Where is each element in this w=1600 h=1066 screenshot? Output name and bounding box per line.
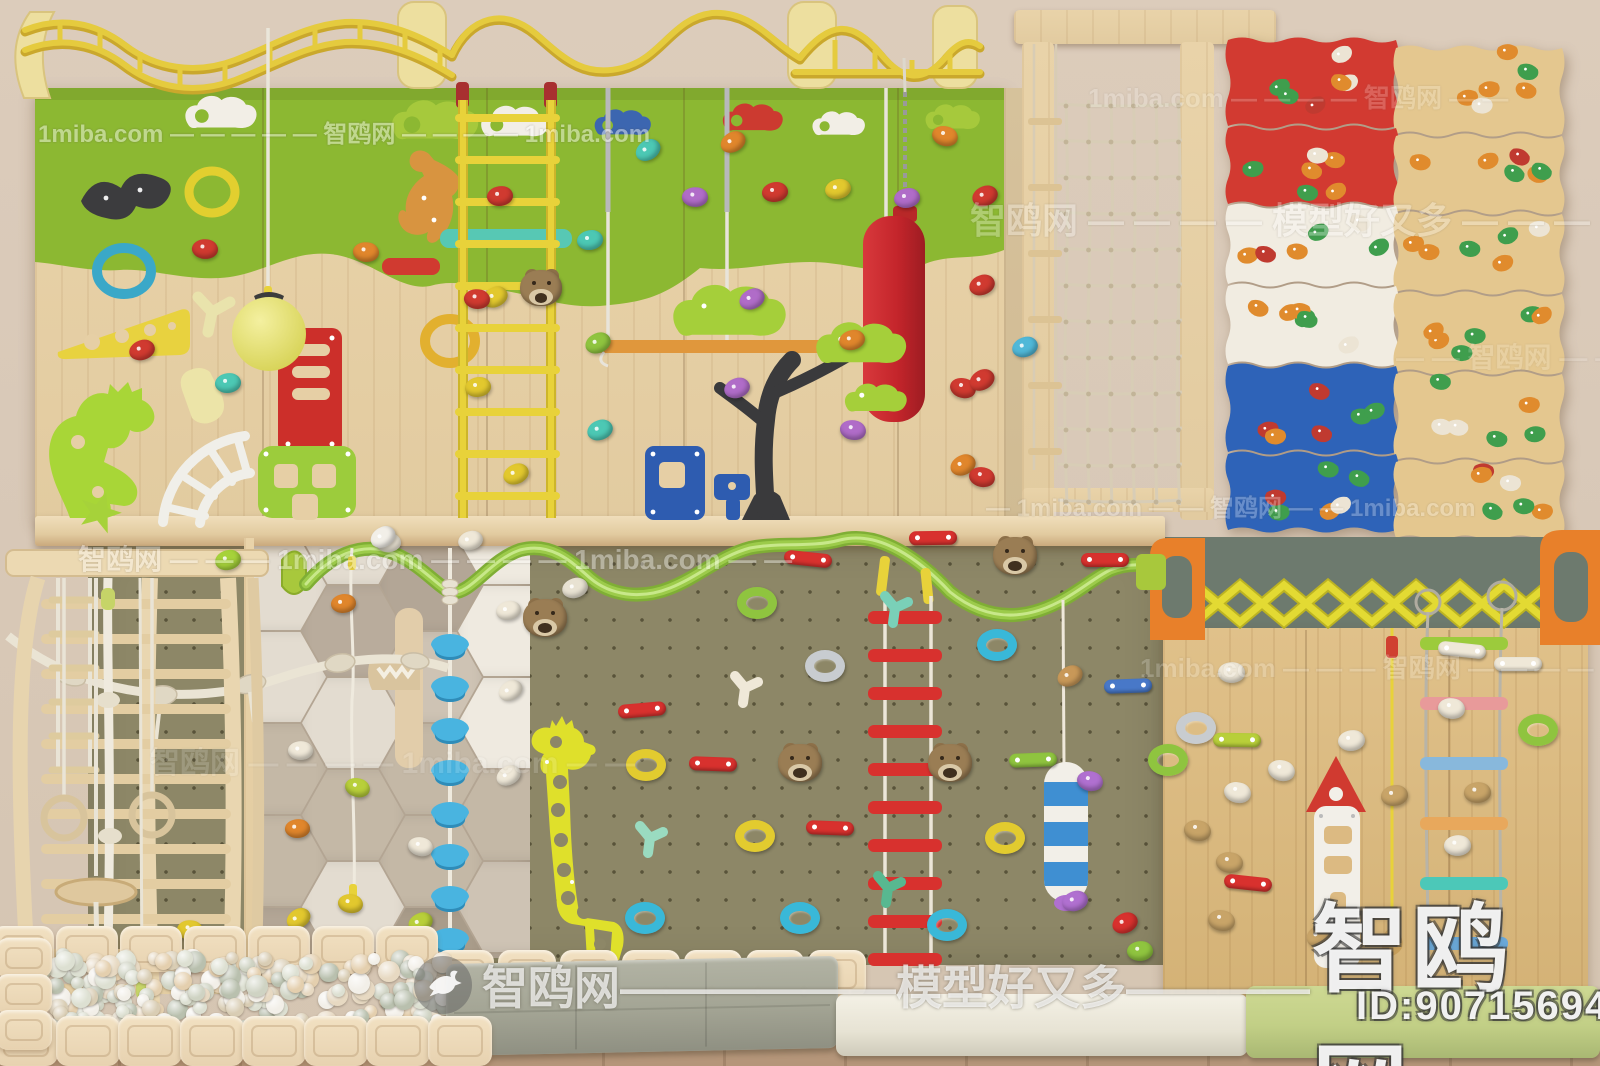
watermark-corner-brand: 智鸥网 xyxy=(1312,872,1600,1066)
cushion-block xyxy=(304,1016,368,1066)
playroom-scene: 1miba.com — — — — — 智鸥网 — — — — 1miba.co… xyxy=(0,0,1600,1066)
cushion-block xyxy=(366,1016,430,1066)
cushion-block xyxy=(0,974,52,1014)
cushion-block xyxy=(118,1016,182,1066)
watermark-model-id: ID:907156945 xyxy=(1356,984,1600,1029)
cushion-block xyxy=(0,938,52,978)
cushion-block xyxy=(0,1010,52,1050)
cushion-block xyxy=(56,1016,120,1066)
cushion-block xyxy=(428,1016,492,1066)
cushion-block xyxy=(242,1016,306,1066)
cushion-block xyxy=(180,1016,244,1066)
